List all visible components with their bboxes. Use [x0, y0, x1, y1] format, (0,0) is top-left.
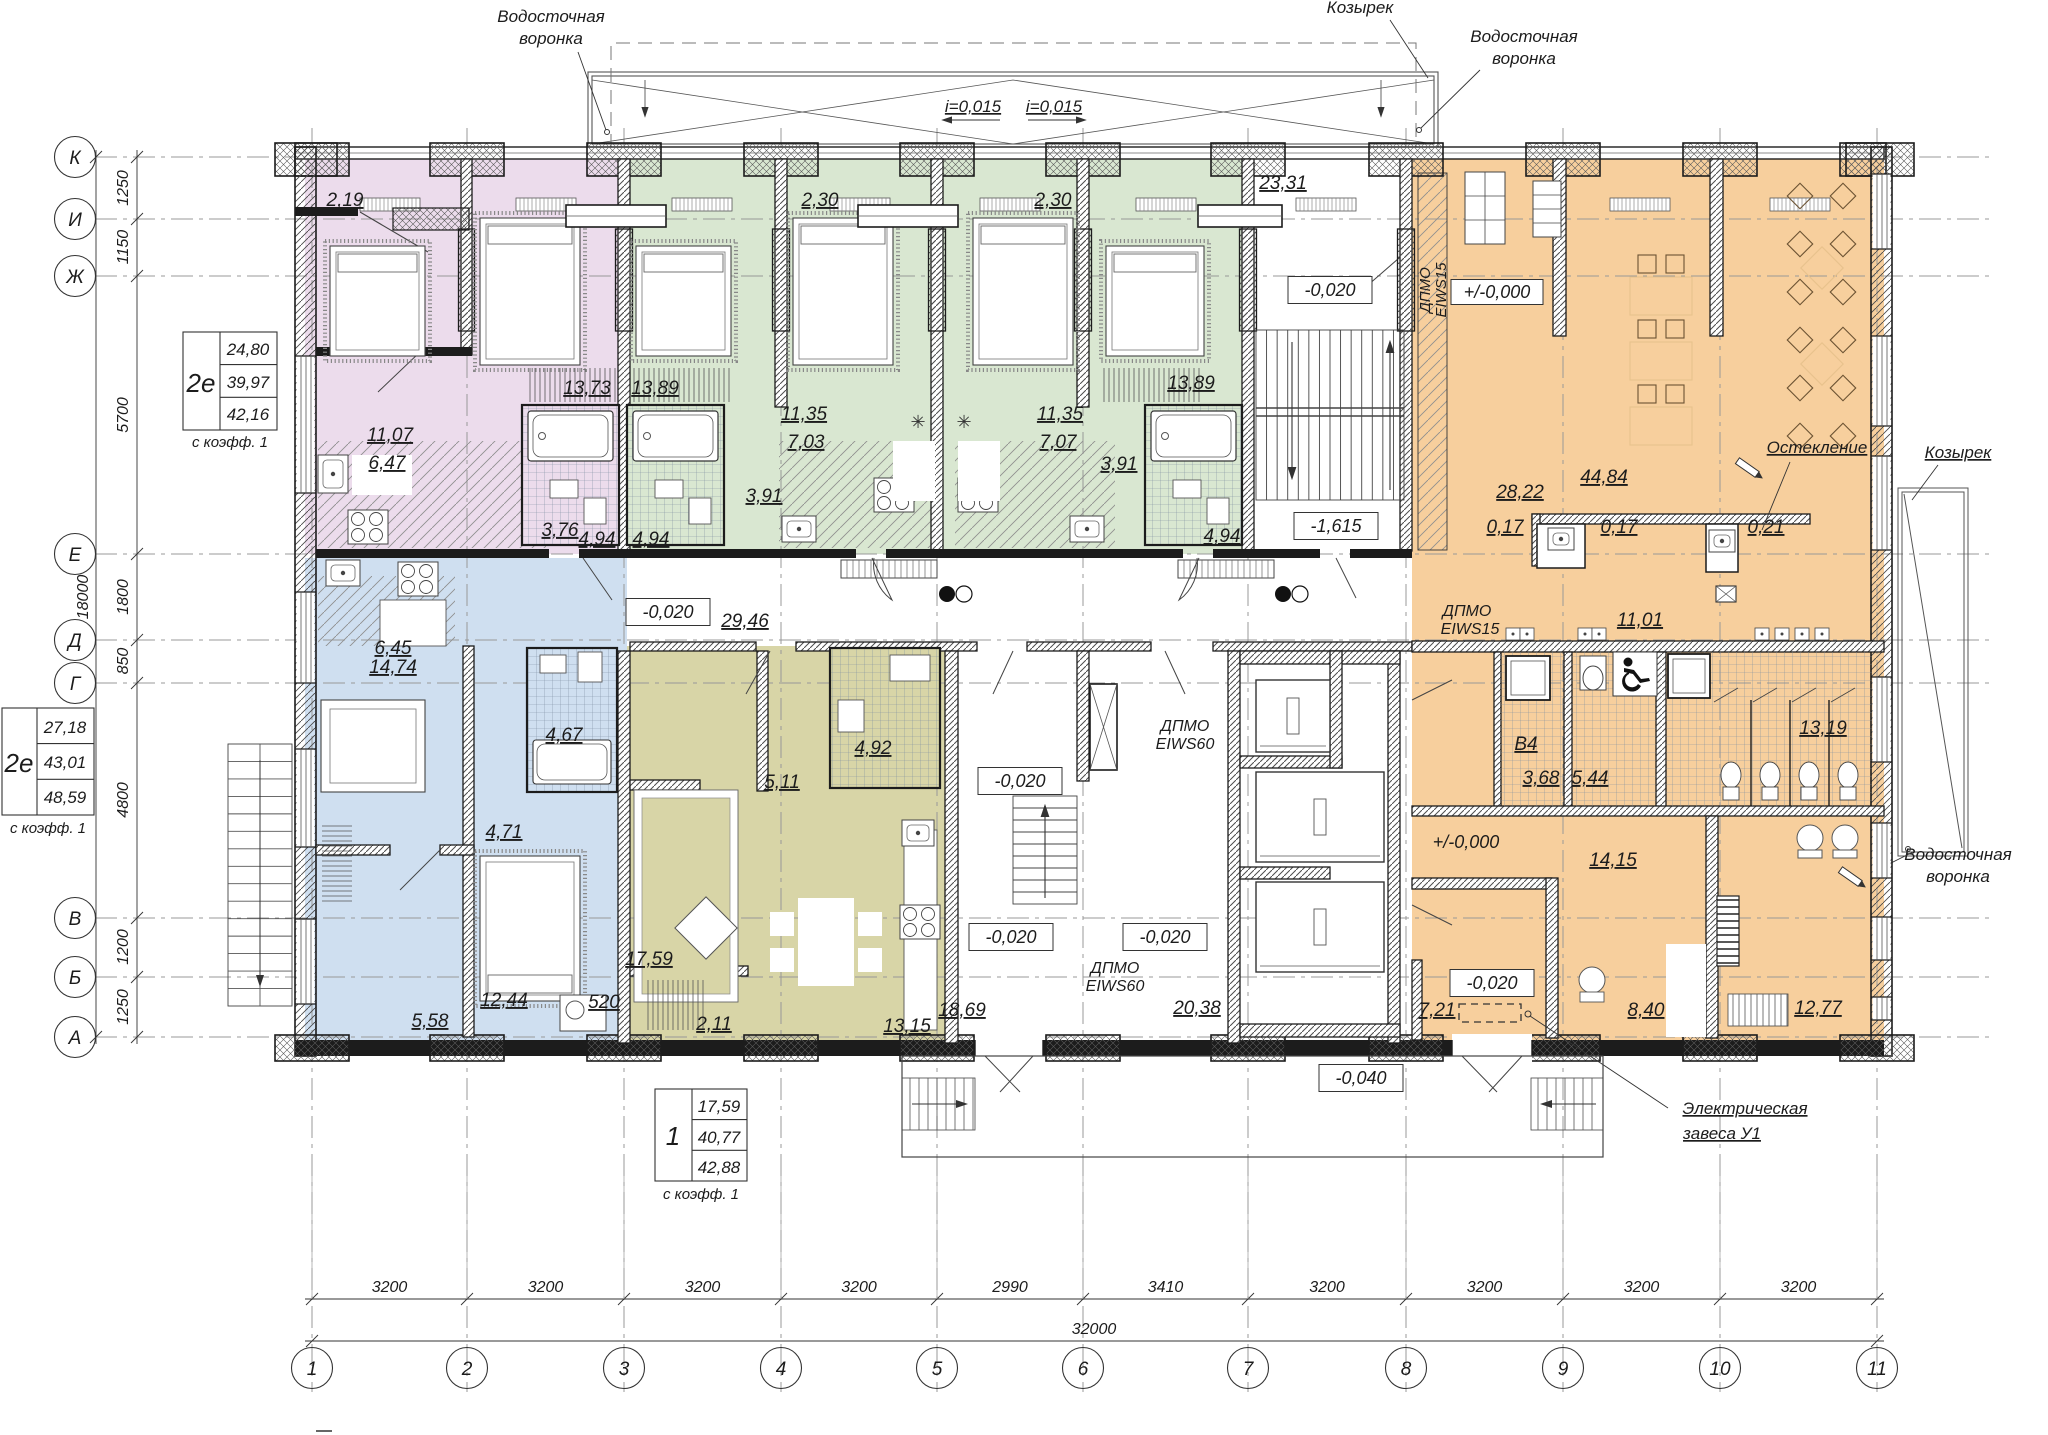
svg-text:4,67: 4,67	[546, 725, 584, 746]
svg-text:39,97: 39,97	[227, 373, 270, 392]
svg-text:8: 8	[1401, 1359, 1412, 1380]
svg-text:-0,040: -0,040	[1335, 1068, 1386, 1088]
svg-text:5,58: 5,58	[412, 1011, 449, 1032]
svg-text:6,47: 6,47	[369, 453, 407, 474]
svg-text:2,19: 2,19	[326, 190, 364, 211]
svg-text:Остекление: Остекление	[1767, 438, 1868, 457]
svg-text:Электрическая: Электрическая	[1682, 1099, 1807, 1118]
svg-text:с коэфф. 1: с коэфф. 1	[663, 1186, 739, 1203]
svg-text:23,31: 23,31	[1258, 173, 1307, 194]
svg-text:17,59: 17,59	[625, 949, 673, 970]
svg-text:44,84: 44,84	[1580, 467, 1628, 488]
svg-text:1250: 1250	[115, 989, 132, 1025]
svg-text:2,11: 2,11	[695, 1014, 732, 1035]
svg-text:-0,020: -0,020	[1139, 927, 1190, 947]
svg-text:3200: 3200	[528, 1279, 564, 1296]
svg-text:5,11: 5,11	[764, 772, 800, 793]
svg-text:14,74: 14,74	[369, 657, 417, 678]
svg-text:48,59: 48,59	[44, 788, 87, 807]
svg-text:Д: Д	[66, 631, 81, 652]
svg-text:воронка: воронка	[519, 29, 583, 48]
svg-text:-0,020: -0,020	[994, 771, 1045, 791]
svg-text:EIWS15: EIWS15	[1441, 621, 1500, 638]
svg-text:4: 4	[776, 1359, 787, 1380]
svg-text:18,69: 18,69	[938, 1000, 986, 1021]
svg-text:Г: Г	[70, 674, 82, 695]
svg-text:4,94: 4,94	[633, 529, 670, 550]
svg-text:EIWS15: EIWS15	[1433, 262, 1450, 318]
svg-text:А: А	[68, 1028, 82, 1049]
svg-text:850: 850	[115, 648, 132, 675]
svg-text:Водосточная: Водосточная	[1470, 27, 1578, 46]
svg-text:4,94: 4,94	[1204, 526, 1241, 547]
svg-text:13,89: 13,89	[1167, 373, 1215, 394]
svg-text:+/-0,000: +/-0,000	[1433, 832, 1500, 852]
svg-text:4,92: 4,92	[855, 738, 892, 759]
svg-text:Водосточная: Водосточная	[1904, 845, 2012, 864]
svg-text:-0,020: -0,020	[642, 602, 693, 622]
svg-text:-0,020: -0,020	[1466, 973, 1517, 993]
svg-text:14,15: 14,15	[1589, 850, 1637, 871]
svg-text:43,01: 43,01	[44, 753, 87, 772]
svg-text:40,77: 40,77	[698, 1128, 741, 1147]
svg-text:7,21: 7,21	[1419, 1000, 1456, 1021]
svg-text:2е: 2е	[186, 368, 216, 398]
svg-text:В: В	[69, 909, 82, 930]
svg-text:12,44: 12,44	[480, 990, 528, 1011]
svg-text:0,17: 0,17	[1601, 517, 1639, 538]
svg-text:-1,615: -1,615	[1310, 516, 1362, 536]
svg-text:1800: 1800	[115, 579, 132, 615]
svg-text:Е: Е	[69, 545, 82, 566]
svg-text:3200: 3200	[1467, 1279, 1503, 1296]
svg-text:-0,020: -0,020	[1304, 280, 1355, 300]
svg-text:ДПМО: ДПМО	[1089, 960, 1140, 977]
svg-text:5,44: 5,44	[1572, 768, 1609, 789]
svg-text:с коэфф. 1: с коэфф. 1	[192, 434, 268, 451]
svg-text:8,40: 8,40	[1628, 1000, 1665, 1021]
svg-text:18000: 18000	[75, 575, 92, 620]
svg-text:2: 2	[461, 1359, 473, 1380]
svg-text:1: 1	[307, 1359, 318, 1380]
svg-text:3200: 3200	[1624, 1279, 1660, 1296]
svg-text:13,73: 13,73	[563, 378, 611, 399]
svg-text:воронка: воронка	[1926, 867, 1990, 886]
svg-text:6,45: 6,45	[375, 638, 412, 659]
svg-text:5700: 5700	[115, 397, 132, 433]
svg-text:13,15: 13,15	[883, 1016, 931, 1037]
svg-text:20,38: 20,38	[1172, 998, 1221, 1019]
svg-text:ДПМО: ДПМО	[1417, 267, 1434, 315]
svg-text:В4: В4	[1514, 734, 1537, 755]
svg-text:К: К	[69, 148, 82, 169]
svg-text:32000: 32000	[1072, 1321, 1117, 1338]
svg-text:0,17: 0,17	[1487, 517, 1525, 538]
svg-text:7,03: 7,03	[788, 432, 825, 453]
svg-text:11,07: 11,07	[367, 425, 415, 446]
svg-text:6: 6	[1078, 1359, 1089, 1380]
svg-text:4800: 4800	[115, 782, 132, 818]
svg-text:10: 10	[1709, 1359, 1731, 1380]
svg-text:i=0,015: i=0,015	[945, 97, 1002, 116]
svg-text:4,94: 4,94	[579, 529, 616, 550]
svg-text:EIWS60: EIWS60	[1156, 736, 1215, 753]
svg-text:3200: 3200	[1309, 1279, 1345, 1296]
svg-text:✳: ✳	[910, 412, 925, 432]
svg-text:1200: 1200	[115, 929, 132, 965]
svg-text:1250: 1250	[115, 170, 132, 206]
svg-text:3200: 3200	[372, 1279, 408, 1296]
svg-text:3200: 3200	[841, 1279, 877, 1296]
svg-text:29,46: 29,46	[720, 611, 769, 632]
svg-text:ДПМО: ДПМО	[1159, 718, 1210, 735]
svg-text:воронка: воронка	[1492, 49, 1556, 68]
svg-text:2,30: 2,30	[801, 190, 839, 211]
svg-text:7,07: 7,07	[1040, 432, 1078, 453]
svg-text:3: 3	[619, 1359, 630, 1380]
svg-text:i=0,015: i=0,015	[1026, 97, 1083, 116]
svg-text:+/-0,000: +/-0,000	[1464, 282, 1531, 302]
svg-text:12,77: 12,77	[1794, 998, 1843, 1019]
svg-text:11,35: 11,35	[1037, 404, 1084, 425]
svg-text:с коэфф. 1: с коэфф. 1	[10, 820, 86, 837]
svg-text:27,18: 27,18	[43, 718, 87, 737]
svg-text:2,30: 2,30	[1034, 190, 1072, 211]
svg-text:7: 7	[1243, 1359, 1255, 1380]
svg-text:2990: 2990	[991, 1279, 1028, 1296]
svg-text:520: 520	[588, 992, 620, 1013]
svg-text:3200: 3200	[685, 1279, 721, 1296]
svg-text:Козырек: Козырек	[1925, 443, 1993, 462]
svg-text:3,91: 3,91	[1101, 454, 1138, 475]
svg-text:4,71: 4,71	[486, 822, 523, 843]
svg-text:✳: ✳	[956, 412, 971, 432]
svg-text:1: 1	[666, 1121, 680, 1151]
svg-text:3,68: 3,68	[1523, 768, 1560, 789]
svg-text:Козырек: Козырек	[1327, 0, 1395, 17]
svg-text:11,35: 11,35	[781, 404, 828, 425]
svg-text:Водосточная: Водосточная	[497, 7, 605, 26]
svg-text:24,80: 24,80	[226, 340, 270, 359]
svg-text:28,22: 28,22	[1495, 482, 1544, 503]
svg-text:завеса У1: завеса У1	[1682, 1124, 1761, 1143]
svg-text:3410: 3410	[1148, 1279, 1184, 1296]
svg-text:3,91: 3,91	[746, 486, 783, 507]
svg-text:42,16: 42,16	[227, 405, 270, 424]
svg-text:11: 11	[1867, 1359, 1887, 1380]
svg-text:ДПМО: ДПМО	[1441, 603, 1492, 620]
svg-text:5: 5	[932, 1359, 943, 1380]
svg-text:0,21: 0,21	[1748, 517, 1785, 538]
svg-text:17,59: 17,59	[698, 1097, 741, 1116]
svg-text:3200: 3200	[1781, 1279, 1817, 1296]
svg-text:42,88: 42,88	[698, 1158, 741, 1177]
svg-text:Ж: Ж	[65, 267, 85, 288]
svg-text:2е: 2е	[4, 748, 34, 778]
svg-text:-0,020: -0,020	[985, 927, 1036, 947]
svg-text:3,76: 3,76	[542, 520, 579, 541]
svg-text:Б: Б	[69, 968, 81, 989]
svg-text:11,01: 11,01	[1617, 610, 1663, 631]
svg-text:13,19: 13,19	[1799, 718, 1847, 739]
svg-text:И: И	[68, 210, 82, 231]
svg-text:EIWS60: EIWS60	[1086, 978, 1145, 995]
svg-text:13,89: 13,89	[631, 378, 679, 399]
svg-text:9: 9	[1558, 1359, 1569, 1380]
svg-text:1150: 1150	[115, 230, 132, 265]
